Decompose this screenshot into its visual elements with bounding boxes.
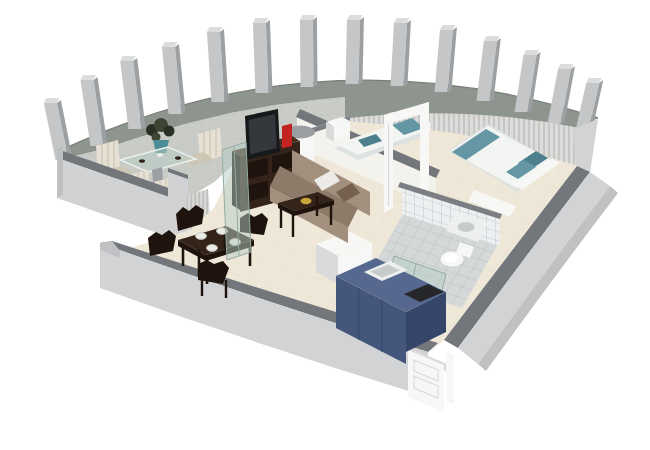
flat-screen-tv xyxy=(245,109,280,160)
pillar xyxy=(484,36,500,41)
pillar xyxy=(586,78,602,83)
pillar xyxy=(440,25,456,30)
pillar xyxy=(524,50,540,55)
pillar xyxy=(44,98,60,103)
pillar xyxy=(207,27,223,32)
pillar xyxy=(120,56,136,61)
glass-door-panel xyxy=(222,142,251,260)
apartment-3d-render xyxy=(0,0,650,450)
gold-bowl xyxy=(301,198,312,204)
pillar xyxy=(300,15,316,20)
pillar xyxy=(253,18,269,23)
pillar xyxy=(313,17,318,87)
pillar xyxy=(346,20,360,84)
pillar xyxy=(347,15,363,20)
pillar xyxy=(80,75,96,80)
floorplan-stage xyxy=(0,0,650,450)
pillar xyxy=(300,20,314,87)
pillar xyxy=(162,42,178,47)
entry-door xyxy=(404,346,454,412)
pillar xyxy=(253,23,269,93)
red-vase xyxy=(282,124,292,149)
pillar xyxy=(394,18,410,23)
pillar xyxy=(558,64,574,69)
